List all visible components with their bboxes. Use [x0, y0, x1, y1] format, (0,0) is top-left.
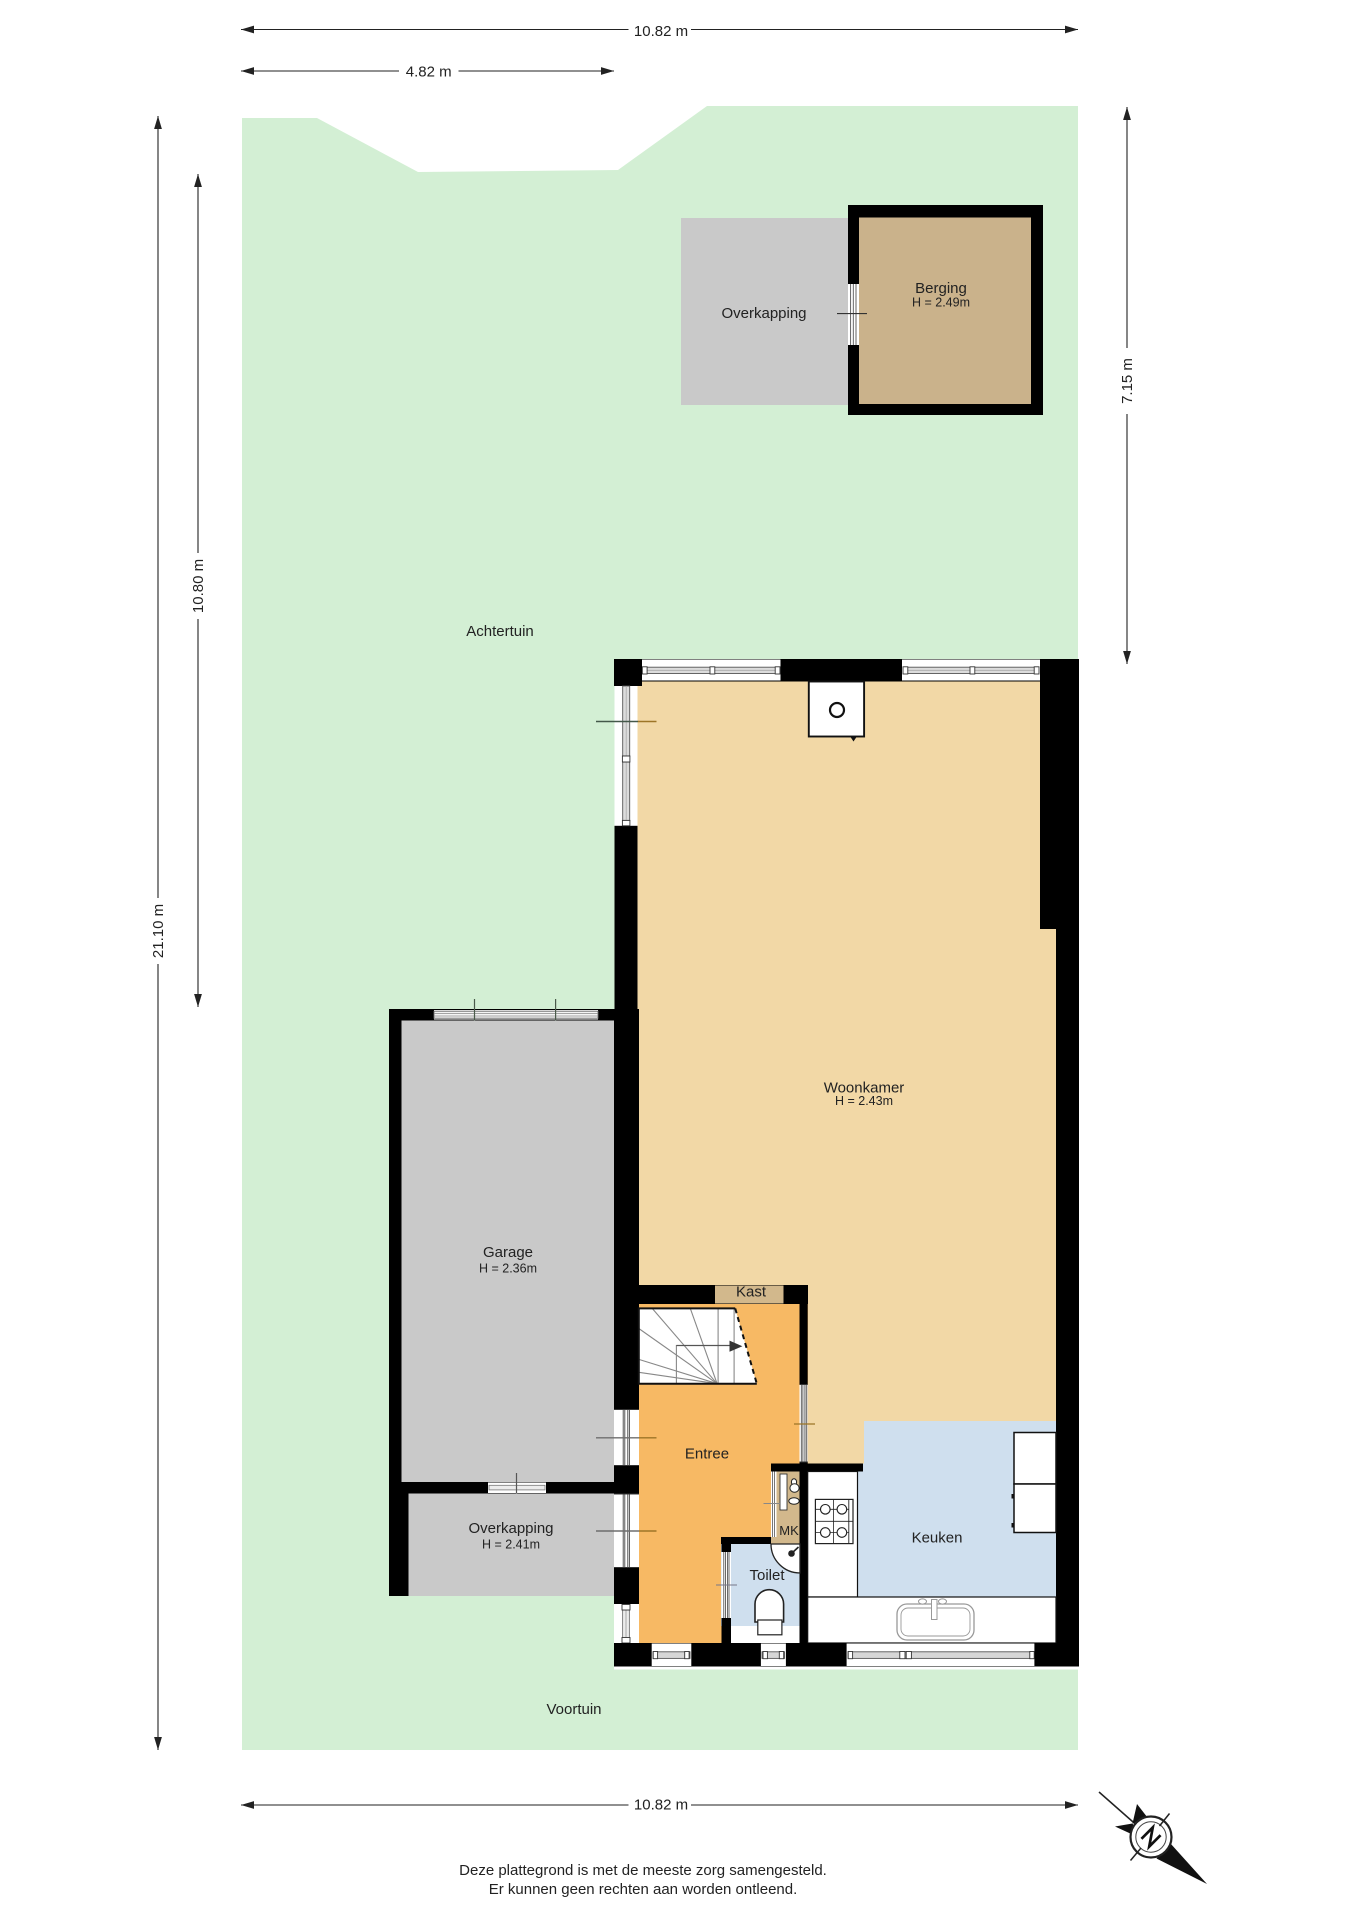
svg-text:Voortuin: Voortuin [546, 1701, 601, 1718]
svg-text:21.10 m: 21.10 m [150, 904, 167, 958]
svg-text:Deze plattegrond is met de mee: Deze plattegrond is met de meeste zorg s… [459, 1862, 827, 1879]
svg-text:Kast: Kast [736, 1284, 767, 1301]
svg-text:H = 2.43m: H = 2.43m [835, 1094, 893, 1108]
svg-text:Overkapping: Overkapping [468, 1520, 553, 1537]
svg-text:Toilet: Toilet [749, 1567, 785, 1584]
svg-text:Keuken: Keuken [912, 1529, 963, 1546]
svg-text:H = 2.36m: H = 2.36m [479, 1262, 537, 1276]
svg-text:Entree: Entree [685, 1446, 729, 1463]
svg-text:H = 2.49m: H = 2.49m [912, 296, 970, 310]
svg-text:Overkapping: Overkapping [721, 305, 806, 322]
svg-text:4.82 m: 4.82 m [406, 64, 452, 81]
svg-text:10.80 m: 10.80 m [190, 559, 207, 613]
svg-text:MK: MK [779, 1523, 799, 1538]
svg-text:Achtertuin: Achtertuin [466, 623, 534, 640]
svg-text:10.82 m: 10.82 m [634, 1797, 688, 1814]
svg-text:7.15 m: 7.15 m [1119, 358, 1136, 404]
svg-text:H = 2.41m: H = 2.41m [482, 1538, 540, 1552]
svg-text:Er kunnen geen rechten aan wor: Er kunnen geen rechten aan worden ontlee… [489, 1881, 798, 1898]
svg-text:Garage: Garage [483, 1244, 533, 1261]
svg-text:10.82 m: 10.82 m [634, 23, 688, 40]
svg-text:Berging: Berging [915, 280, 967, 297]
